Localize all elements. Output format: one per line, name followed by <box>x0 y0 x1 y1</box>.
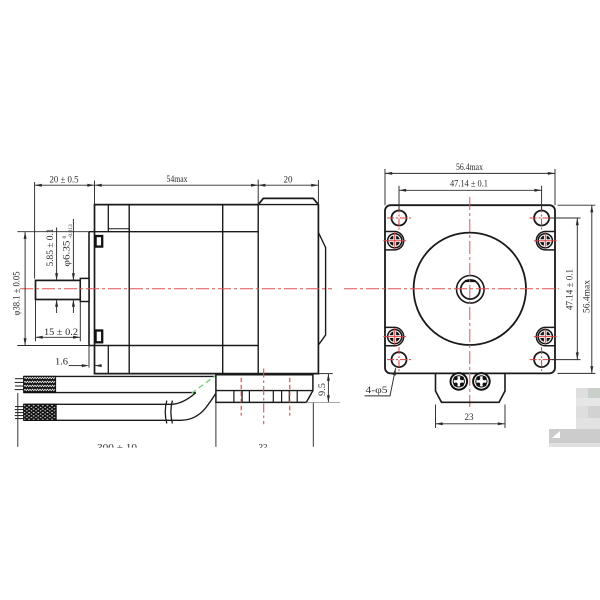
svg-text:20 ± 0.5: 20 ± 0.5 <box>50 175 79 185</box>
svg-text:9.5: 9.5 <box>317 382 327 396</box>
svg-text:φ38.1 ± 0.05: φ38.1 ± 0.05 <box>12 271 22 315</box>
svg-text:47.14 ± 0.1: 47.14 ± 0.1 <box>450 179 488 189</box>
svg-text:0: 0 <box>62 236 68 239</box>
svg-text:5.85 ± 0.1: 5.85 ± 0.1 <box>45 229 55 267</box>
svg-text:23: 23 <box>465 412 475 422</box>
svg-text:1.6: 1.6 <box>55 356 69 366</box>
svg-text:4-φ5: 4-φ5 <box>366 385 389 395</box>
svg-text:56.4max: 56.4max <box>582 279 592 313</box>
svg-text:15 ± 0.2: 15 ± 0.2 <box>44 327 78 337</box>
svg-text:56.4max: 56.4max <box>456 162 483 172</box>
svg-text:54max: 54max <box>167 174 188 184</box>
svg-text:φ6.35: φ6.35 <box>62 240 72 267</box>
svg-text:-0.013: -0.013 <box>68 224 74 238</box>
svg-text:20: 20 <box>284 175 294 185</box>
svg-text:47.14 ± 0.1: 47.14 ± 0.1 <box>564 269 574 310</box>
